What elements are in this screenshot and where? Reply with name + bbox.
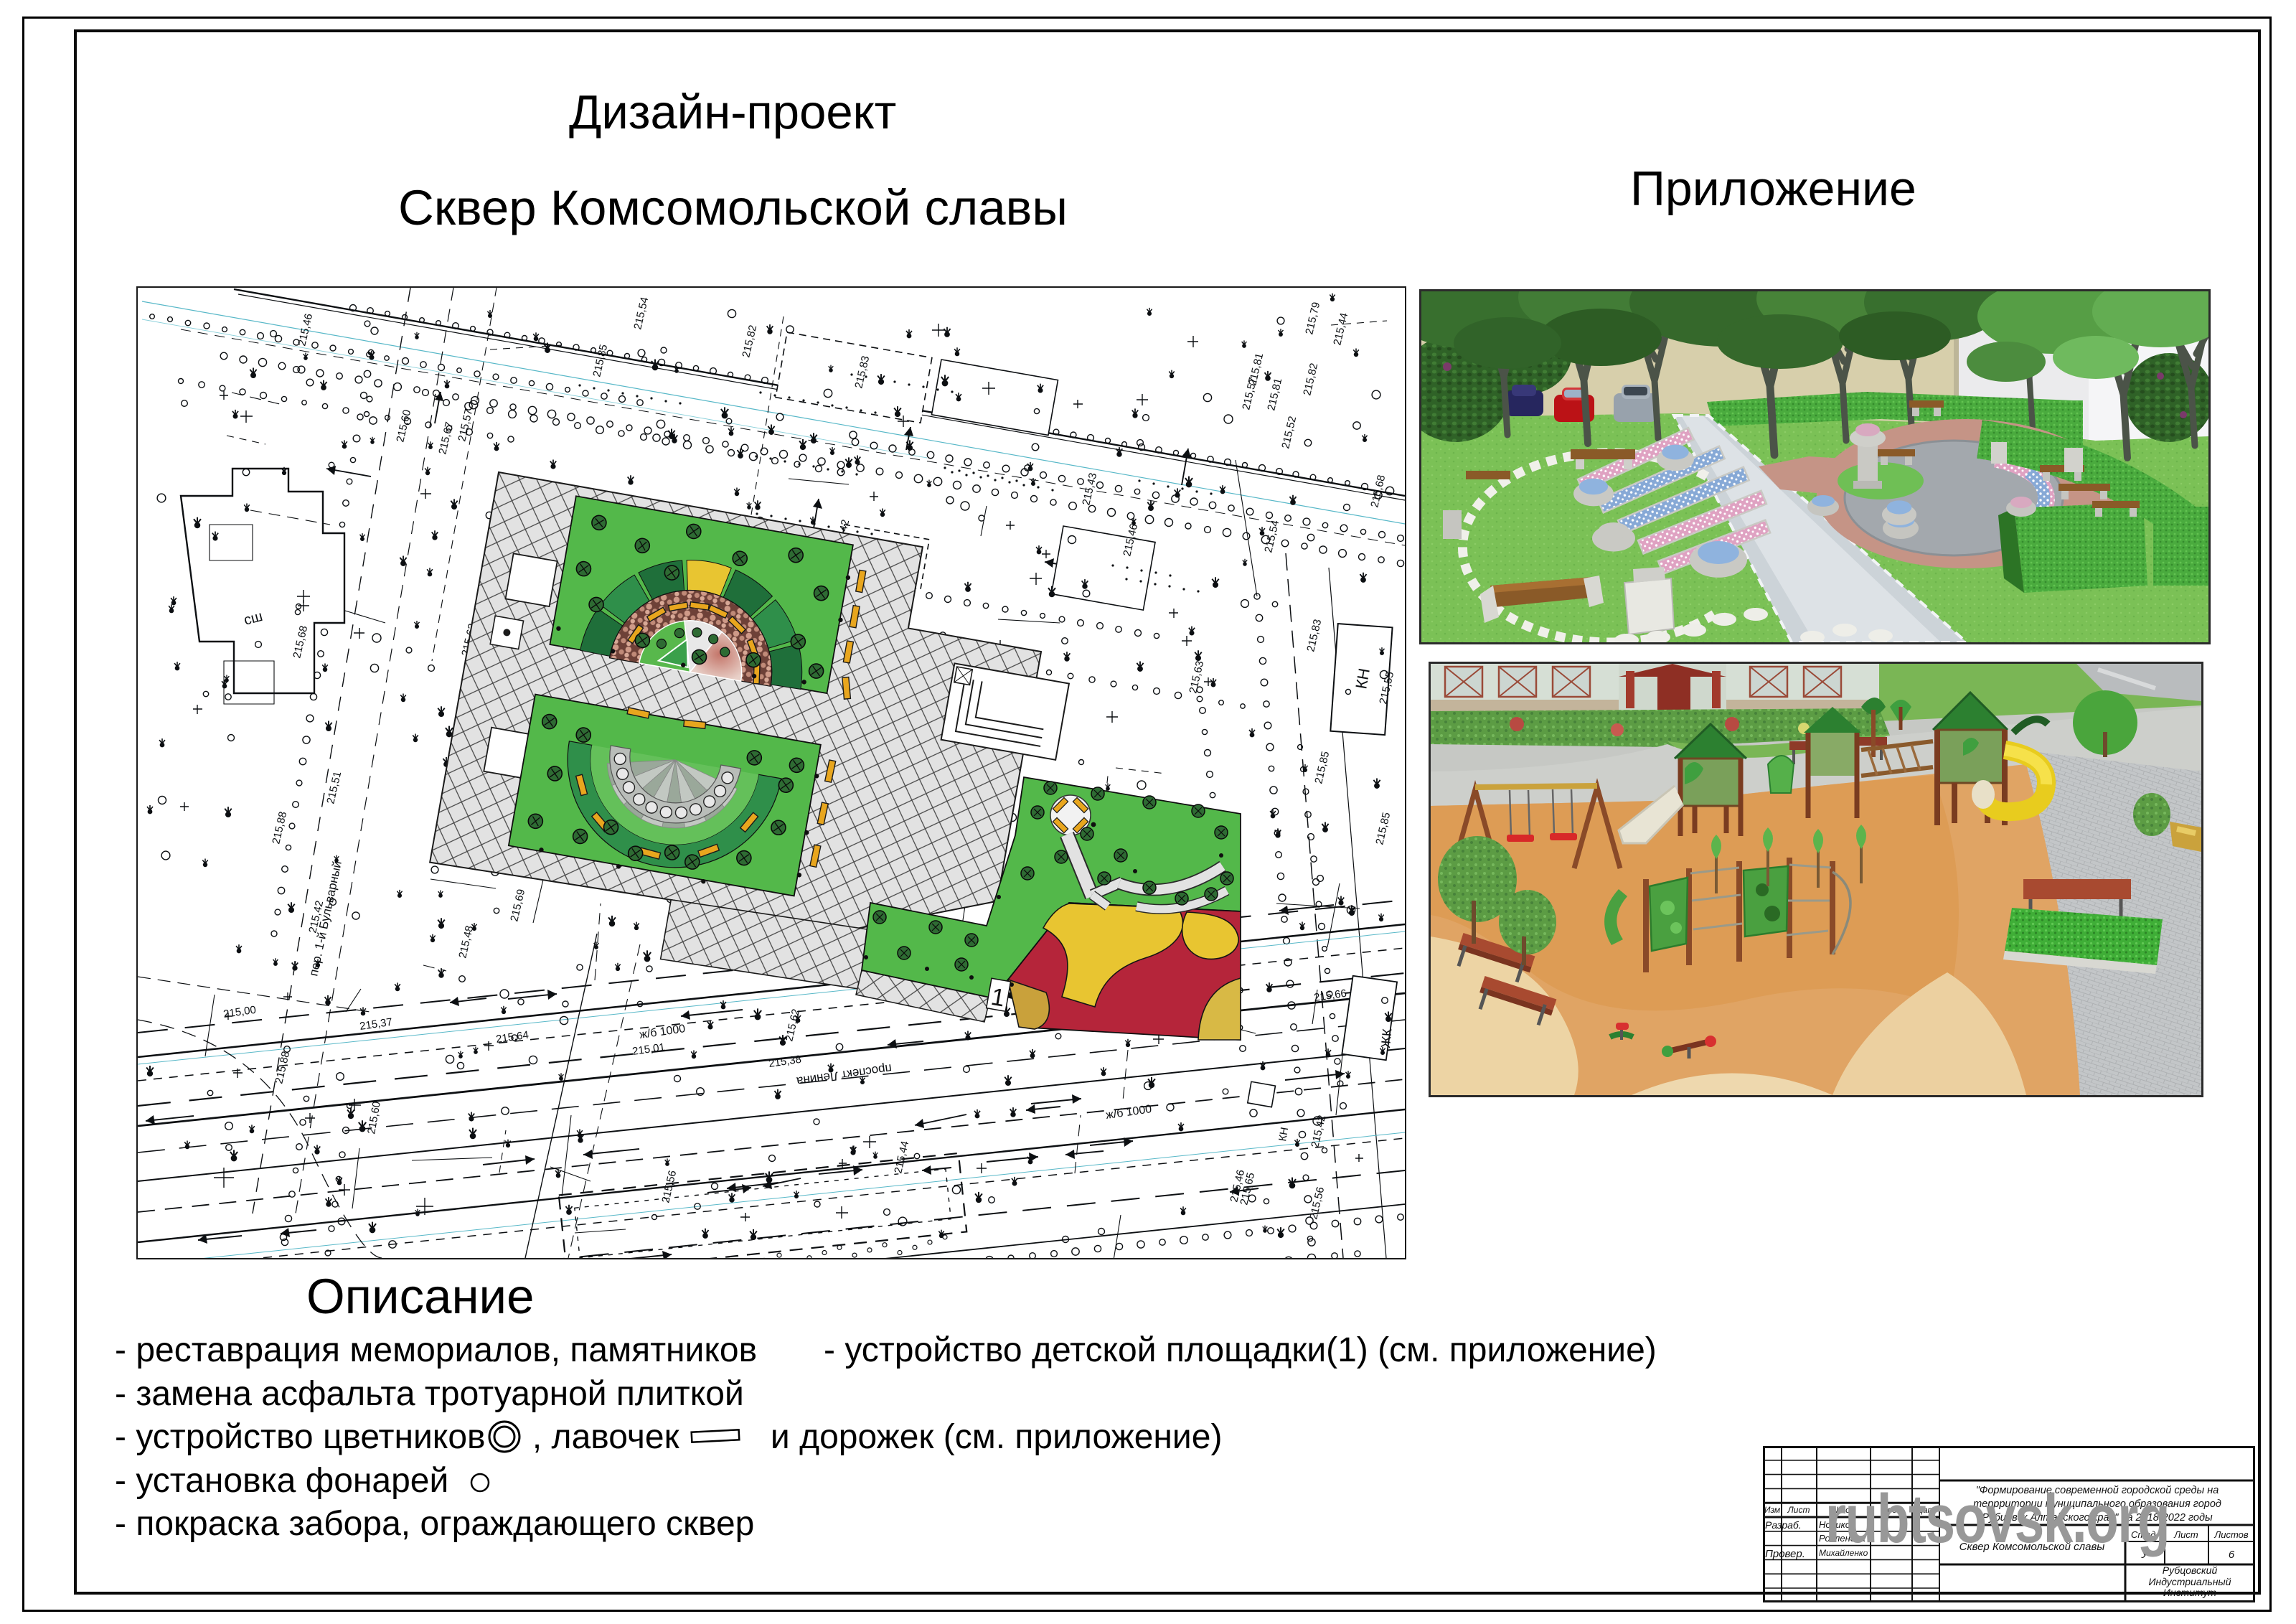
svg-text:ЖК: ЖК (1378, 1028, 1394, 1048)
svg-text:КН: КН (1276, 1126, 1291, 1142)
svg-text:Индустриальный: Индустриальный (2148, 1576, 2231, 1587)
svg-text:Провер.: Провер. (1765, 1548, 1805, 1560)
svg-text:6: 6 (2229, 1549, 2235, 1561)
svg-text:Изм: Изм (1764, 1505, 1780, 1515)
svg-text:Разраб.: Разраб. (1765, 1519, 1802, 1531)
svg-text:Лист: Лист (1787, 1505, 1810, 1515)
svg-text:Институт: Институт (2163, 1587, 2217, 1598)
svg-text:Рубцовский: Рубцовский (2163, 1564, 2218, 1576)
svg-text:Листов: Листов (2213, 1529, 2249, 1540)
svg-text:КН: КН (1352, 667, 1373, 690)
svg-text:Лист: Лист (2173, 1529, 2198, 1540)
